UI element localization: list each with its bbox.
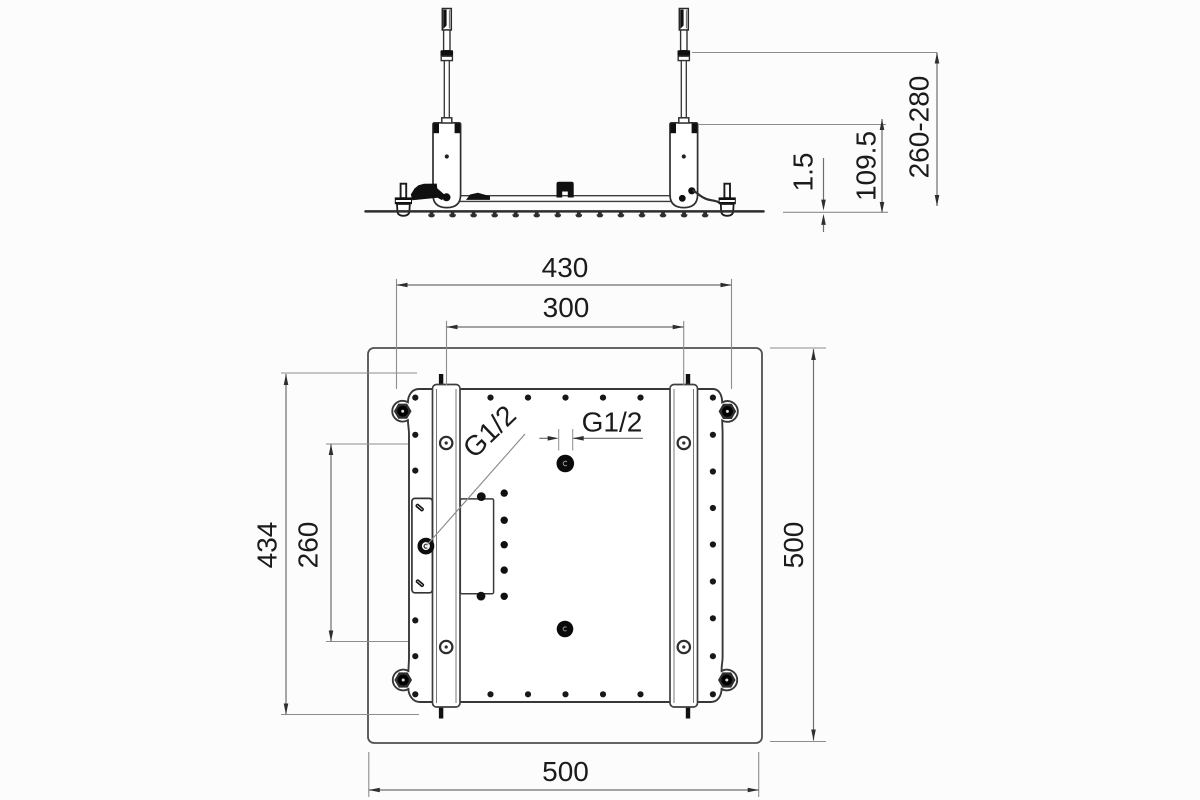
svg-text:500: 500 — [542, 756, 589, 787]
svg-text:260-280: 260-280 — [904, 76, 935, 179]
svg-text:500: 500 — [778, 522, 809, 569]
svg-text:109.5: 109.5 — [851, 131, 882, 201]
svg-text:1.5: 1.5 — [788, 153, 819, 192]
svg-text:434: 434 — [252, 522, 283, 569]
svg-text:260: 260 — [293, 522, 324, 569]
svg-text:300: 300 — [543, 292, 590, 323]
svg-text:G1/2: G1/2 — [582, 407, 643, 438]
svg-text:430: 430 — [542, 252, 589, 283]
